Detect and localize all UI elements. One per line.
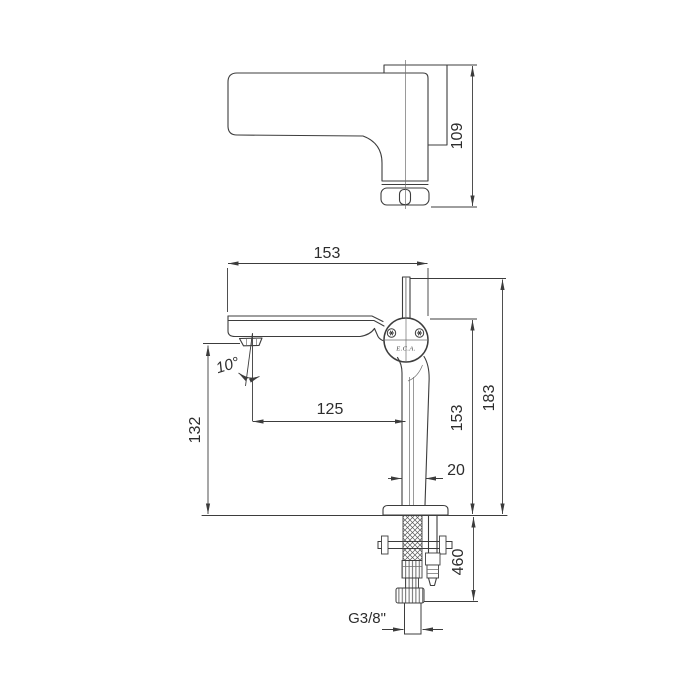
connection-tube	[405, 603, 422, 634]
hose-sleeve	[402, 561, 422, 579]
screw-left-icon	[387, 329, 395, 337]
valve-body: E.C.A.	[383, 277, 429, 363]
column-collar-curve	[408, 365, 423, 381]
top-view: 109	[228, 60, 477, 209]
column-left-edge	[398, 358, 403, 506]
dim-132-label: 132	[187, 417, 204, 444]
thread-label: G3/8"	[348, 610, 386, 627]
spout-bottom-edge	[235, 329, 375, 337]
hose-neck	[406, 578, 419, 588]
threaded-shank	[403, 516, 422, 561]
connection-nut	[396, 588, 424, 603]
faucet-technical-drawing: 109 153	[0, 0, 700, 700]
dimension-153-top: 153	[228, 245, 429, 316]
dimension-125: 125	[253, 401, 406, 422]
column	[398, 357, 430, 506]
angle-arc	[239, 373, 260, 378]
spout-left-edge	[228, 316, 235, 337]
dim-153top-label: 153	[314, 245, 341, 262]
spout-top-edge-inner	[228, 321, 384, 327]
mounting-stud-right	[440, 536, 447, 554]
front-view: 153 E	[187, 245, 507, 634]
dim-460-label: 460	[450, 549, 467, 576]
dimension-thread: G3/8"	[348, 610, 443, 630]
mounting-stud-left	[382, 536, 389, 554]
drawing-canvas: 109 153	[0, 0, 700, 700]
brand-logo: E.C.A.	[395, 346, 416, 353]
under-counter-assembly	[378, 516, 452, 635]
spout-junction-notch	[375, 329, 385, 342]
angle-label: 10°	[214, 354, 241, 377]
dim-125-label: 125	[317, 401, 344, 418]
supply-hose-fitting	[427, 565, 439, 578]
top-view-body-outline	[228, 73, 428, 181]
screw-right-icon	[415, 329, 423, 337]
dim-20-label: 20	[447, 462, 465, 479]
supply-hose-connector	[426, 553, 441, 565]
dim-183-label: 183	[481, 385, 498, 412]
supply-hose-tip	[429, 578, 437, 586]
dim-109-label: 109	[449, 123, 466, 150]
dim-153r-label: 153	[449, 405, 466, 432]
top-view-aerator-slot	[400, 190, 411, 205]
dimension-153-right: 153	[430, 319, 477, 514]
base-flange	[383, 506, 448, 516]
dimension-angle-10: 10°	[214, 333, 260, 422]
column-right-edge	[424, 357, 429, 506]
